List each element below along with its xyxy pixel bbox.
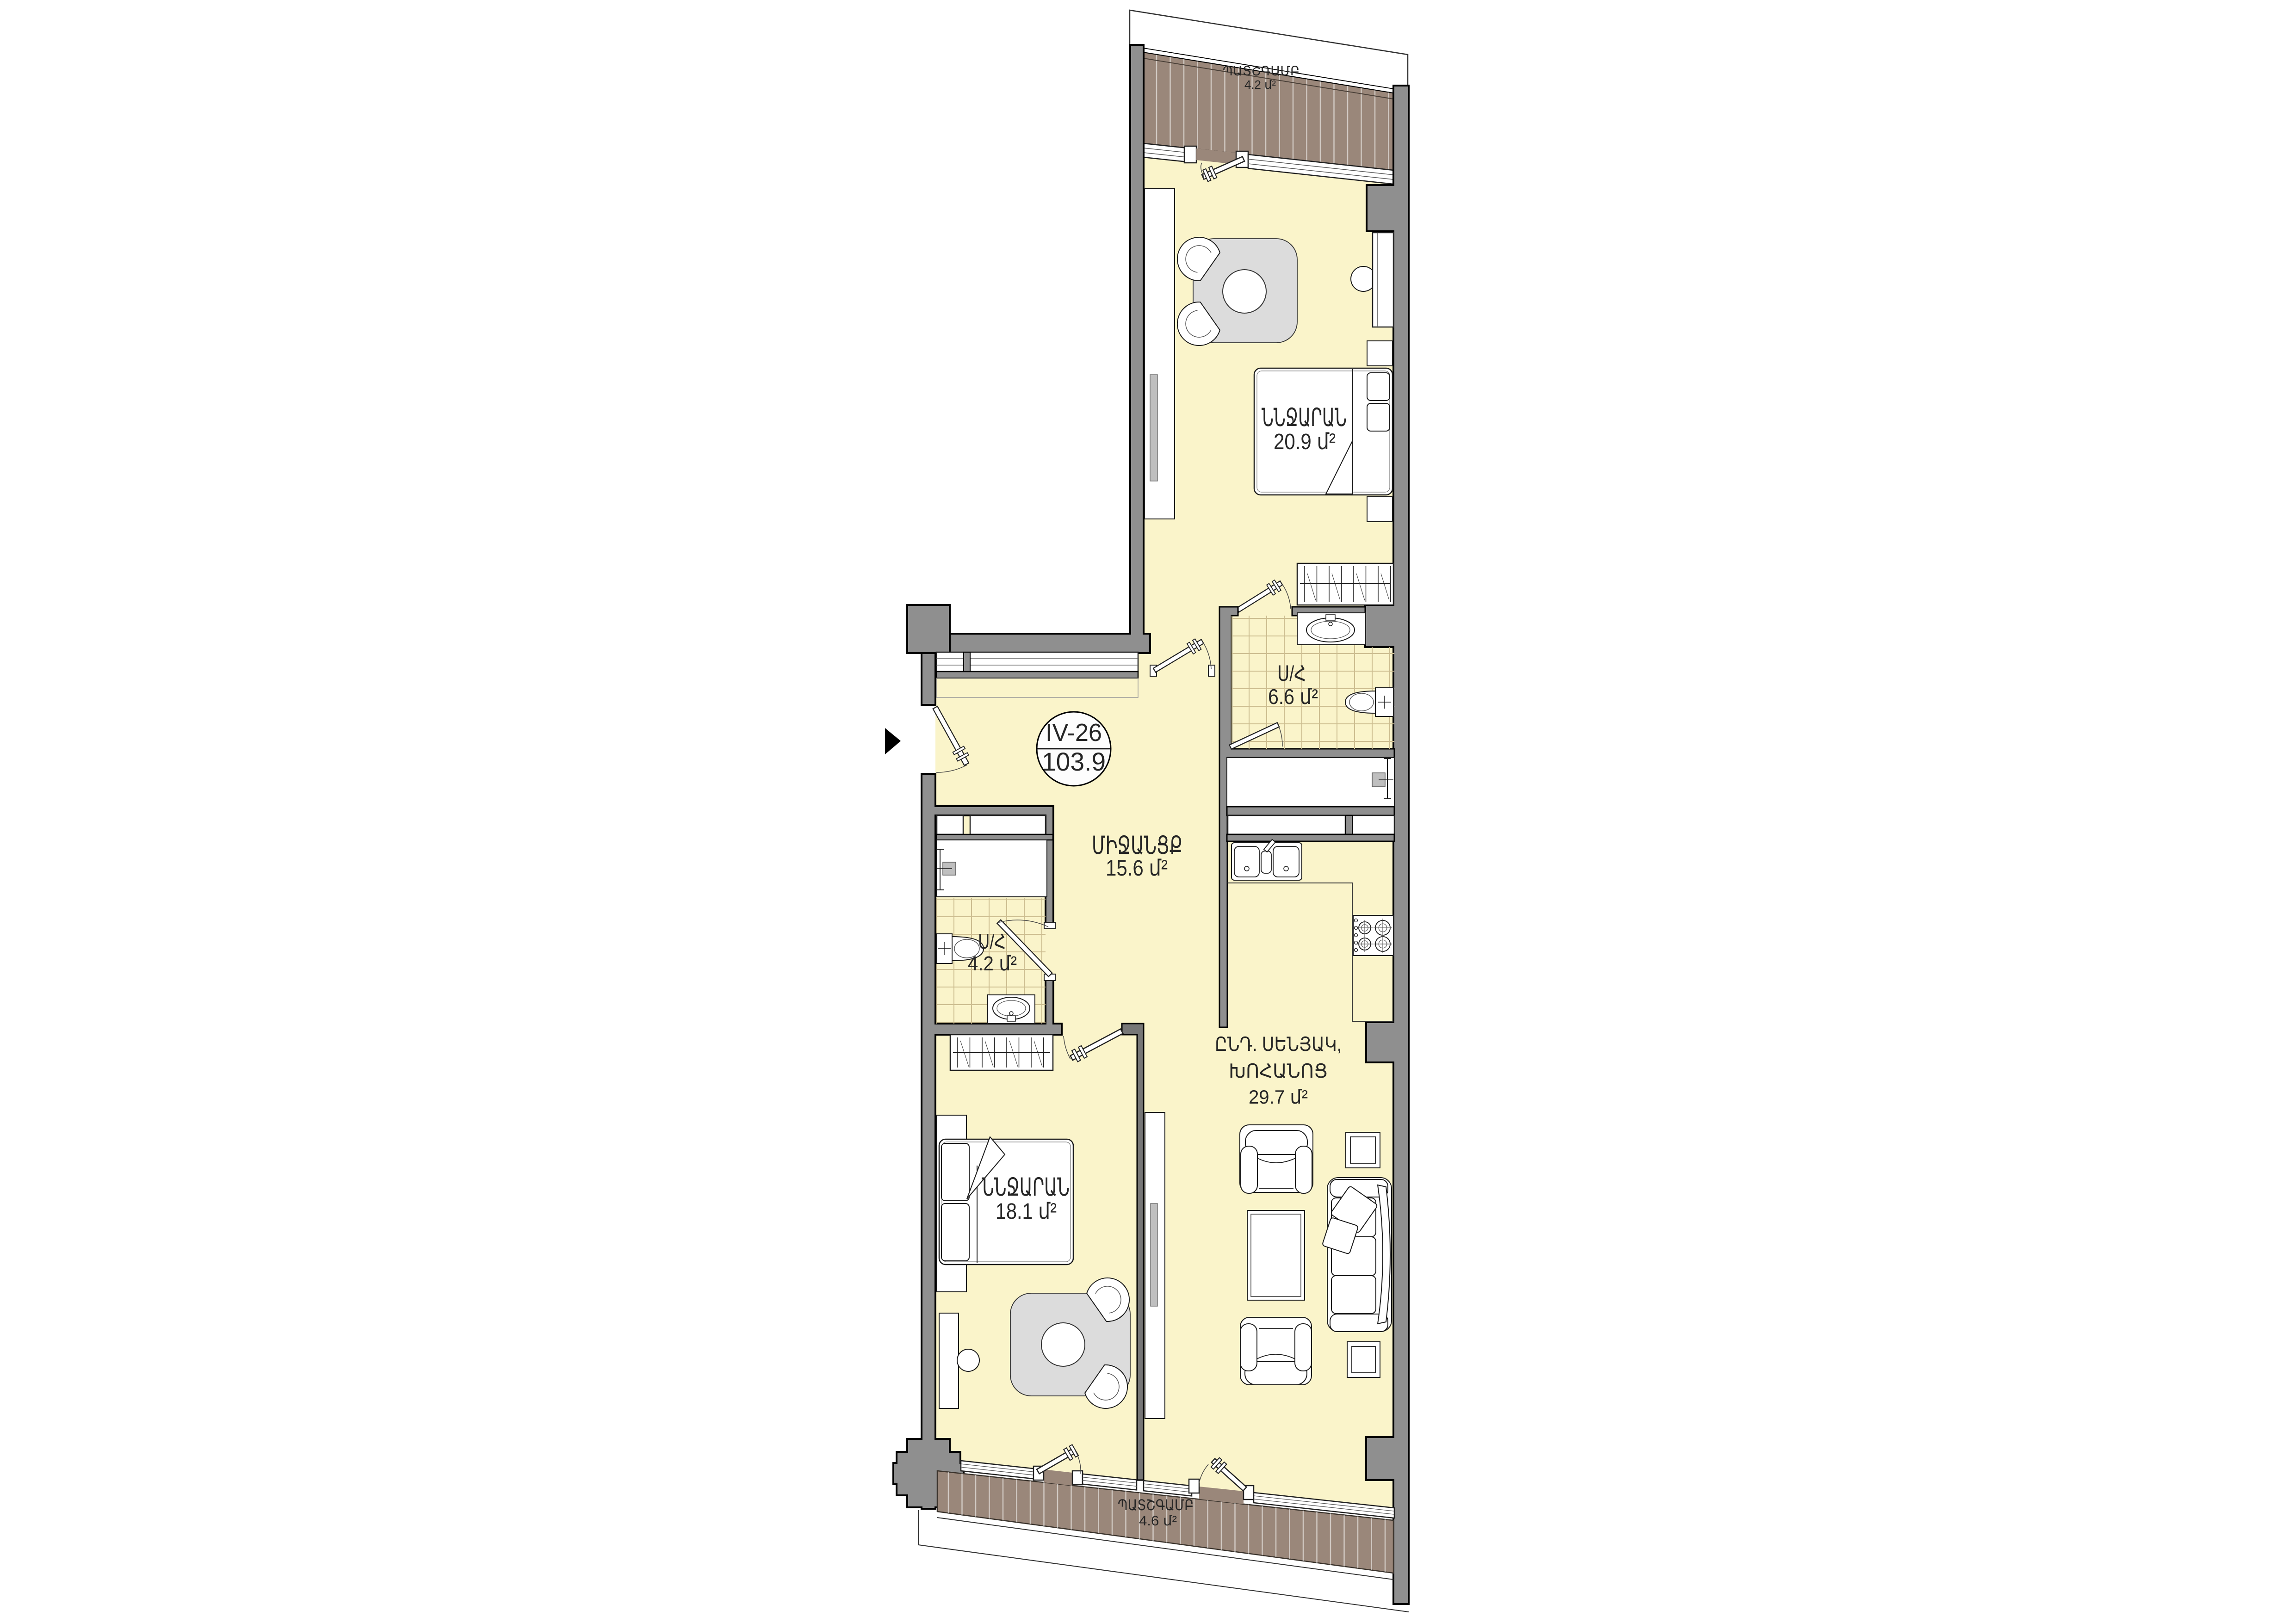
- svg-text:6.6 մ²: 6.6 մ²: [1268, 685, 1318, 709]
- svg-text:20.9 մ²: 20.9 մ²: [1274, 430, 1336, 454]
- svg-text:15.6 մ²: 15.6 մ²: [1106, 856, 1168, 881]
- svg-text:Ս/Հ: Ս/Հ: [1277, 661, 1306, 685]
- svg-text:103.9: 103.9: [1042, 747, 1106, 776]
- svg-text:4.6 մ²: 4.6 մ²: [1139, 1513, 1177, 1529]
- svg-text:ՆՆՋԱՐԱՆ: ՆՆՋԱՐԱՆ: [982, 1173, 1070, 1201]
- svg-text:ՊԱՏՇԳԱՄԲ: ՊԱՏՇԳԱՄԲ: [1223, 64, 1300, 78]
- svg-text:18.1 մ²: 18.1 մ²: [996, 1199, 1057, 1224]
- svg-text:ԽՈՀԱՆՈՑ: ԽՈՀԱՆՈՑ: [1229, 1060, 1328, 1082]
- svg-text:ՊԱՏՇԳԱՄԲ: ՊԱՏՇԳԱՄԲ: [1118, 1497, 1194, 1513]
- svg-text:ՆՆՋԱՐԱՆ: ՆՆՋԱՐԱՆ: [1262, 404, 1347, 432]
- svg-text:4.2 մ²: 4.2 մ²: [1244, 78, 1276, 92]
- svg-text:IV-26: IV-26: [1046, 719, 1102, 747]
- svg-text:ԸՆԴ. ՍԵՆՅԱԿ,: ԸՆԴ. ՍԵՆՅԱԿ,: [1215, 1033, 1342, 1055]
- svg-text:ՄԻՋԱՆՑՔ: ՄԻՋԱՆՑՔ: [1092, 832, 1182, 859]
- svg-text:4.2 մ²: 4.2 մ²: [968, 952, 1017, 975]
- svg-text:29.7 մ²: 29.7 մ²: [1249, 1086, 1308, 1108]
- svg-text:Ս/Հ: Ս/Հ: [978, 931, 1006, 953]
